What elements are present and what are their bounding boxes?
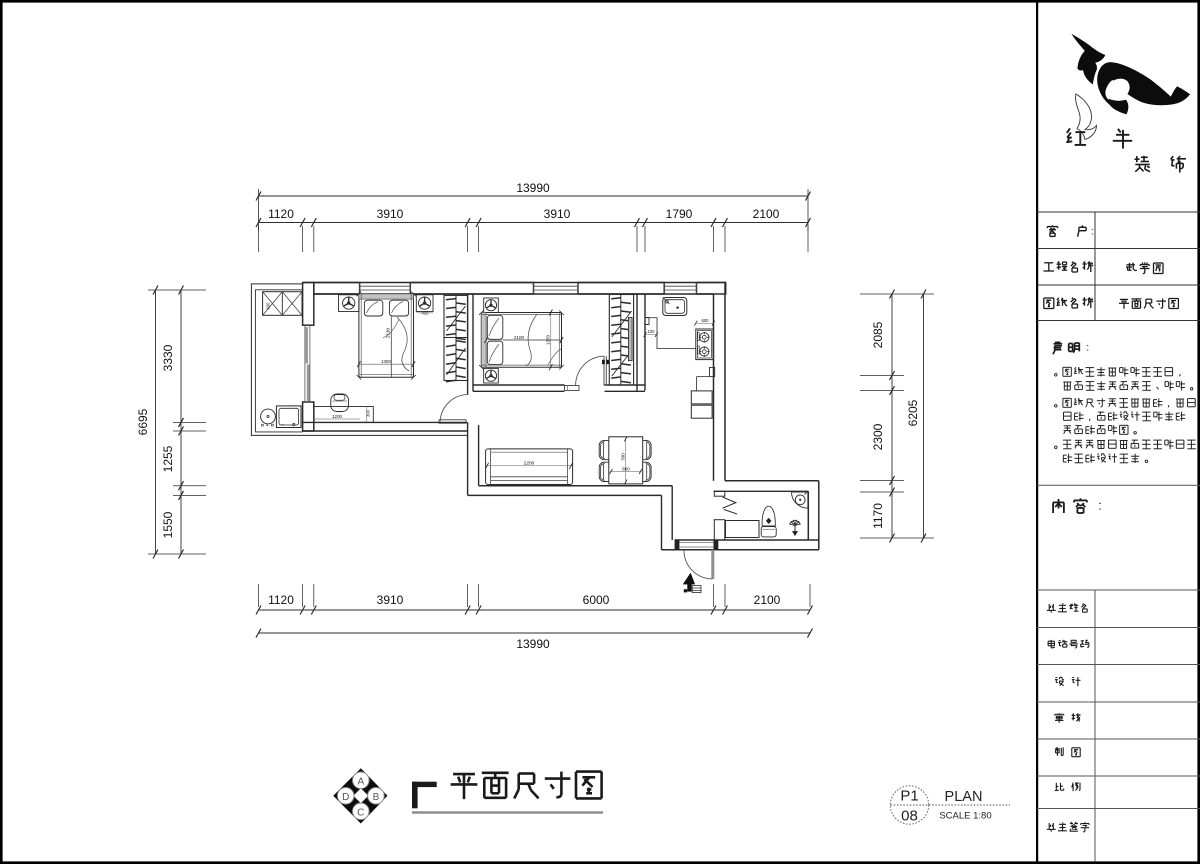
svg-text:6000: 6000	[583, 593, 610, 607]
svg-text:1120: 1120	[268, 593, 294, 607]
svg-text:6205: 6205	[906, 399, 920, 426]
svg-text:1550: 1550	[161, 511, 175, 538]
svg-text:08: 08	[901, 808, 918, 825]
svg-text:3910: 3910	[377, 593, 404, 607]
svg-text:2100: 2100	[753, 207, 780, 221]
svg-text:2100: 2100	[514, 335, 525, 340]
svg-text:100: 100	[648, 329, 656, 334]
svg-text:2085: 2085	[871, 321, 885, 348]
svg-text:600: 600	[266, 302, 271, 310]
svg-text:1790: 1790	[666, 207, 693, 221]
svg-text:1120: 1120	[268, 207, 294, 221]
svg-text:13990: 13990	[516, 637, 550, 651]
svg-text:3910: 3910	[377, 207, 404, 221]
svg-text:13990: 13990	[516, 181, 550, 195]
svg-text:2130: 2130	[386, 327, 391, 338]
svg-text:6695: 6695	[136, 408, 150, 435]
svg-text:3910: 3910	[544, 207, 571, 221]
svg-text:A: A	[357, 776, 364, 787]
svg-text:1350: 1350	[381, 359, 392, 364]
svg-text:2200: 2200	[524, 460, 535, 466]
svg-text:2300: 2300	[871, 423, 885, 450]
svg-text:700: 700	[621, 453, 626, 461]
svg-text:P1: P1	[900, 788, 918, 805]
svg-text:3330: 3330	[161, 344, 175, 371]
svg-text:1255: 1255	[161, 445, 175, 472]
svg-text:1200: 1200	[332, 414, 343, 419]
svg-text:B: B	[373, 792, 380, 803]
svg-text:C: C	[357, 807, 364, 818]
svg-text:300: 300	[366, 409, 371, 417]
svg-text:800: 800	[622, 466, 630, 471]
svg-text:600: 600	[702, 318, 710, 323]
svg-text:1170: 1170	[871, 503, 885, 529]
svg-text:PLAN: PLAN	[945, 789, 983, 805]
svg-text:2100: 2100	[754, 593, 781, 607]
svg-text:D: D	[342, 792, 349, 803]
svg-text:SCALE 1:80: SCALE 1:80	[939, 810, 991, 821]
svg-text:1370: 1370	[546, 334, 551, 345]
